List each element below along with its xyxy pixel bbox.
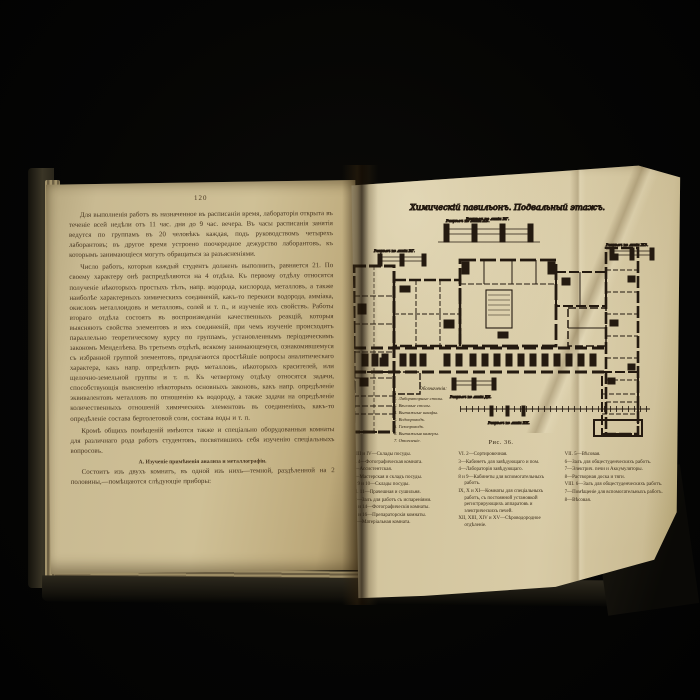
- legend-entry: 7—Помѣщеніе для вспомогательныхъ работъ.: [565, 490, 664, 497]
- legend-entry: 7—Электрич. печи и Аккумуляторы.: [565, 467, 664, 474]
- symbols-legend-item: 5. Газопроводъ.: [394, 423, 472, 430]
- closing-paragraph: Состоитъ изъ двухъ комнатъ, въ одной изъ…: [71, 466, 335, 488]
- legend-entry: 7—Ассистентская.: [352, 467, 451, 474]
- legend-entry: XII, XIII, XIV и XV—Сѣроводородное отдѣл…: [458, 516, 557, 529]
- room-legend-column-1: I. III и IV—Склады посуды.II. 4—Фотограф…: [352, 452, 451, 531]
- plan-topleft-block: [394, 280, 460, 346]
- room-legend: I. III и IV—Склады посуды.II. 4—Фотограф…: [352, 452, 664, 531]
- paragraph: Число работъ, которыя каждый студентъ до…: [69, 261, 334, 424]
- book-photo: 120 Для выполненія работъ въ назначенное…: [0, 0, 700, 700]
- symbols-legend-item: 7. Отопленіе.: [394, 437, 472, 444]
- legend-entry: I. III и IV—Склады посуды.: [352, 452, 451, 459]
- symbols-legend-item: 6. Вытяжныя камеры.: [394, 430, 472, 437]
- svg-text:Разрѣзъ по линіи АБ.: Разрѣзъ по линіи АБ.: [445, 218, 490, 223]
- legend-entry: VIII. 6—Залъ для общестуденческихъ работ…: [565, 482, 664, 489]
- body-paragraphs: Для выполненія работъ въ назначенное въ …: [69, 209, 335, 457]
- section-heading: А. Изученіе примѣненія анализа и металло…: [71, 458, 335, 466]
- legend-entry: 8—Растворная доска и тяги.: [565, 475, 664, 482]
- legend-entry: 6—Залъ для общестуденческихъ работъ.: [565, 460, 664, 467]
- left-page: 120 Для выполненія работъ въ назначенное…: [46, 180, 360, 574]
- foldout-plate-page: Химическій павильонъ. Подвальный этажъ. …: [348, 162, 694, 614]
- symbols-legend-item: 3. Вытяжные шкафы.: [394, 409, 472, 416]
- room-legend-column-2: VI. 2—Сортировочная.3—Кабинетъ для завѣд…: [458, 452, 557, 531]
- paragraph: Кромѣ общихъ помѣщеній имѣются также и с…: [70, 425, 334, 457]
- section-drawing-ab: Разрѣзъ по линіи АБ.: [438, 218, 540, 242]
- symbols-legend-title: Обозначенія:: [394, 386, 472, 394]
- legend-entry: IX, X и XI—Комнаты для спеціальныхъ рабо…: [458, 489, 557, 515]
- section-drawing-vg: Разрѣзъ по линіи ВГ.: [373, 249, 426, 266]
- symbols-legend-item: 2. Вѣсовые столы.: [394, 402, 472, 409]
- symbols-legend-item: 1. Лабораторные столы.: [394, 395, 472, 402]
- symbols-legend: Обозначенія: 1. Лабораторные столы.2. Вѣ…: [394, 386, 472, 445]
- legend-entry: 13 и 14—Фотографическія комнаты.: [352, 505, 451, 512]
- paragraph: Для выполненія работъ въ назначенное въ …: [69, 209, 333, 261]
- legend-entry: 17—Матеріальная комната.: [352, 520, 451, 527]
- plan-lower-right-wing: [602, 372, 638, 434]
- page-number: 120: [69, 193, 333, 203]
- plan-midright-rooms: [556, 272, 606, 346]
- figure-caption: Рис. 36.: [466, 439, 536, 446]
- legend-entry: II. 4—Фотографическая комната.: [352, 460, 451, 467]
- svg-text:Разрѣзъ по линіи ВГ.: Разрѣзъ по линіи ВГ.: [373, 249, 415, 253]
- left-page-text-block: 120 Для выполненія работъ въ назначенное…: [69, 193, 336, 561]
- plan-center-block: [460, 260, 556, 346]
- symbols-legend-items: 1. Лабораторные столы.2. Вѣсовые столы.3…: [394, 395, 472, 445]
- legend-entry: 8—Мастерская и складъ посуды.: [352, 475, 451, 482]
- svg-text:Разрѣзъ по линіи ИК.: Разрѣзъ по линіи ИК.: [487, 421, 530, 425]
- legend-entry: VII. 5—Вѣсовая.: [565, 452, 664, 459]
- legend-entry: 15 и 16—Препараторскія комнаты.: [352, 513, 451, 520]
- legend-entry: V. 9 и 10—Склады посуды.: [352, 482, 451, 489]
- legend-entry: VI. 11—Прачешная и сушильня.: [352, 490, 451, 497]
- legend-entry: 8—Вѣсовая.: [565, 498, 664, 505]
- legend-entry: 12—Залъ для работъ съ испареніями.: [352, 498, 451, 505]
- legend-entry: 8 и 9—Кабинеты для вспомогательныхъ рабо…: [458, 475, 557, 488]
- legend-entry: VI. 2—Сортировочная.: [458, 452, 557, 459]
- svg-text:Разрѣзъ по линіи ЖЗ.: Разрѣзъ по линіи ЖЗ.: [605, 243, 648, 247]
- legend-entry: 4—Лабораторія завѣдующаго.: [458, 467, 557, 474]
- room-legend-column-3: VII. 5—Вѣсовая.6—Залъ для общестуденческ…: [565, 452, 664, 531]
- plate-title: Химическій павильонъ. Подвальный этажъ.: [409, 202, 605, 212]
- legend-entry: 3—Кабинетъ для завѣдующаго и пом.: [458, 460, 557, 467]
- symbols-legend-item: 4. Водопроводъ.: [394, 416, 472, 423]
